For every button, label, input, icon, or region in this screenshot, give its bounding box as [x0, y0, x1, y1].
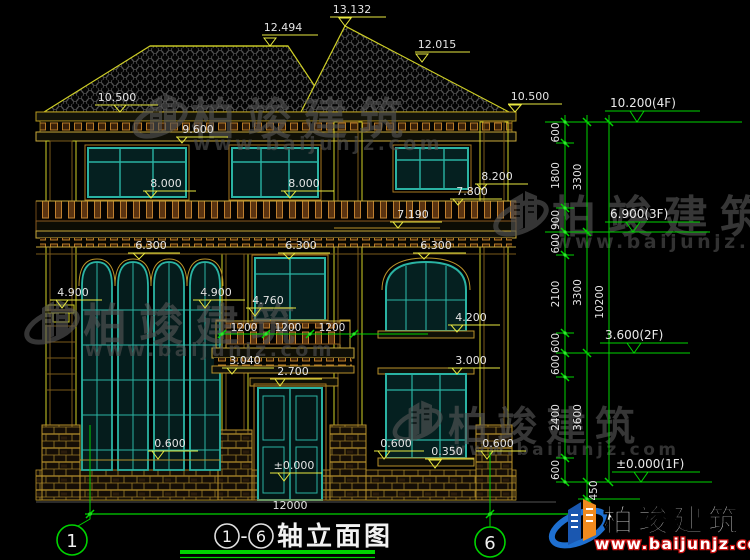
mark-trim-right: 7.190 [397, 208, 429, 221]
vdim-plinth: 450 [588, 480, 600, 500]
level-3f: 6.900(3F) [610, 207, 668, 221]
watermark-top: 柏竣建筑 www.baijunjz.com [130, 93, 443, 155]
level-1f: ±0.000(1F) [616, 457, 684, 471]
level-4f: 10.200(4F) [610, 96, 676, 110]
balcony-dim: 1200 [231, 322, 258, 334]
cad-canvas: 柏竣建筑 www.baijunjz.com 柏竣建筑 www.baijunjz.… [0, 0, 750, 560]
mark-head2-b: 6.300 [285, 239, 317, 252]
brand-logo: 柏竣建筑 www.baijunjz.com [547, 499, 750, 553]
mark-door-head: 2.700 [277, 365, 309, 378]
mark-sill1-rb: 0.600 [482, 437, 514, 450]
watermark-site: www.baijunjz.com [85, 339, 335, 361]
mark-f3-sill-right: 8.200 [481, 170, 513, 183]
mark-f3-sill-b: 8.000 [288, 177, 320, 190]
mark-head1-right: 3.000 [455, 354, 487, 367]
mark-slope-right: 12.015 [418, 38, 457, 51]
watermark-site: www.baijunjz.com [554, 231, 750, 253]
logo-building-blue [568, 502, 581, 545]
window-2f-right-arched [378, 258, 474, 338]
vdim: 3600 [572, 404, 584, 431]
axis-bubble-6: 6 [484, 533, 495, 554]
mark-capital-b: 4.900 [200, 286, 232, 299]
title-text: 轴立面图 [277, 521, 393, 552]
vdim: 600 [550, 460, 562, 480]
mark-sill1-ra: 0.600 [380, 437, 412, 450]
vdim: 10200 [594, 285, 606, 318]
level-2f: 3.600(2F) [605, 328, 663, 342]
drawing-title: 1 - 6 轴立面图 [180, 521, 393, 558]
mark-capital-a: 4.900 [57, 286, 89, 299]
mark-sill1-left: 0.600 [154, 437, 186, 450]
mark-rail: 4.760 [252, 294, 284, 307]
pilaster-junction [330, 122, 366, 500]
mark-f3-sill-a: 8.000 [150, 177, 182, 190]
mark-sill2-right: 4.200 [455, 311, 487, 324]
axis-bubble-1: 1 [66, 531, 77, 552]
logo-brand-text: 柏竣建筑 [603, 504, 743, 539]
logo-site-text: www.baijunjz.com [595, 535, 750, 553]
vdim: 3300 [572, 279, 584, 306]
balcony-dim: 1200 [319, 322, 346, 334]
mark-ridge-left: 12.494 [264, 21, 303, 34]
vdim: 2100 [550, 281, 562, 308]
vdim: 2400 [550, 404, 562, 431]
mark-head2-a: 6.300 [135, 239, 167, 252]
vdim: 3300 [572, 164, 584, 191]
mark-slab: 3.040 [229, 354, 261, 367]
vdim: 600 [550, 333, 562, 353]
vdim: 1800 [550, 162, 562, 189]
vdim: 600 [550, 355, 562, 375]
title-separator: - [240, 524, 247, 548]
vdim: 900 [550, 210, 562, 230]
elevation-drawing: 柏竣建筑 www.baijunjz.com 柏竣建筑 www.baijunjz.… [0, 0, 750, 560]
watermark-site: www.baijunjz.com [193, 133, 443, 155]
mark-sill1-mid: 0.350 [431, 445, 463, 458]
mark-peak: 13.132 [333, 3, 372, 16]
mark-band-right: 7.800 [456, 185, 488, 198]
vdim: 600 [550, 122, 562, 142]
mark-head2-c: 6.300 [420, 239, 452, 252]
mark-eave-right: 10.500 [511, 90, 550, 103]
title-axis-end: 6 [256, 527, 266, 546]
mark-eave-left: 10.500 [98, 91, 137, 104]
title-axis-start: 1 [222, 527, 232, 546]
window-3f-left [85, 145, 189, 200]
balcony-dim: 1200 [275, 322, 302, 334]
mark-threshold: ±0.000 [274, 459, 315, 472]
vdim: 600 [550, 233, 562, 253]
mark-cornice-left: 9.600 [182, 123, 214, 136]
overall-width-dim: 12000 [273, 499, 308, 512]
